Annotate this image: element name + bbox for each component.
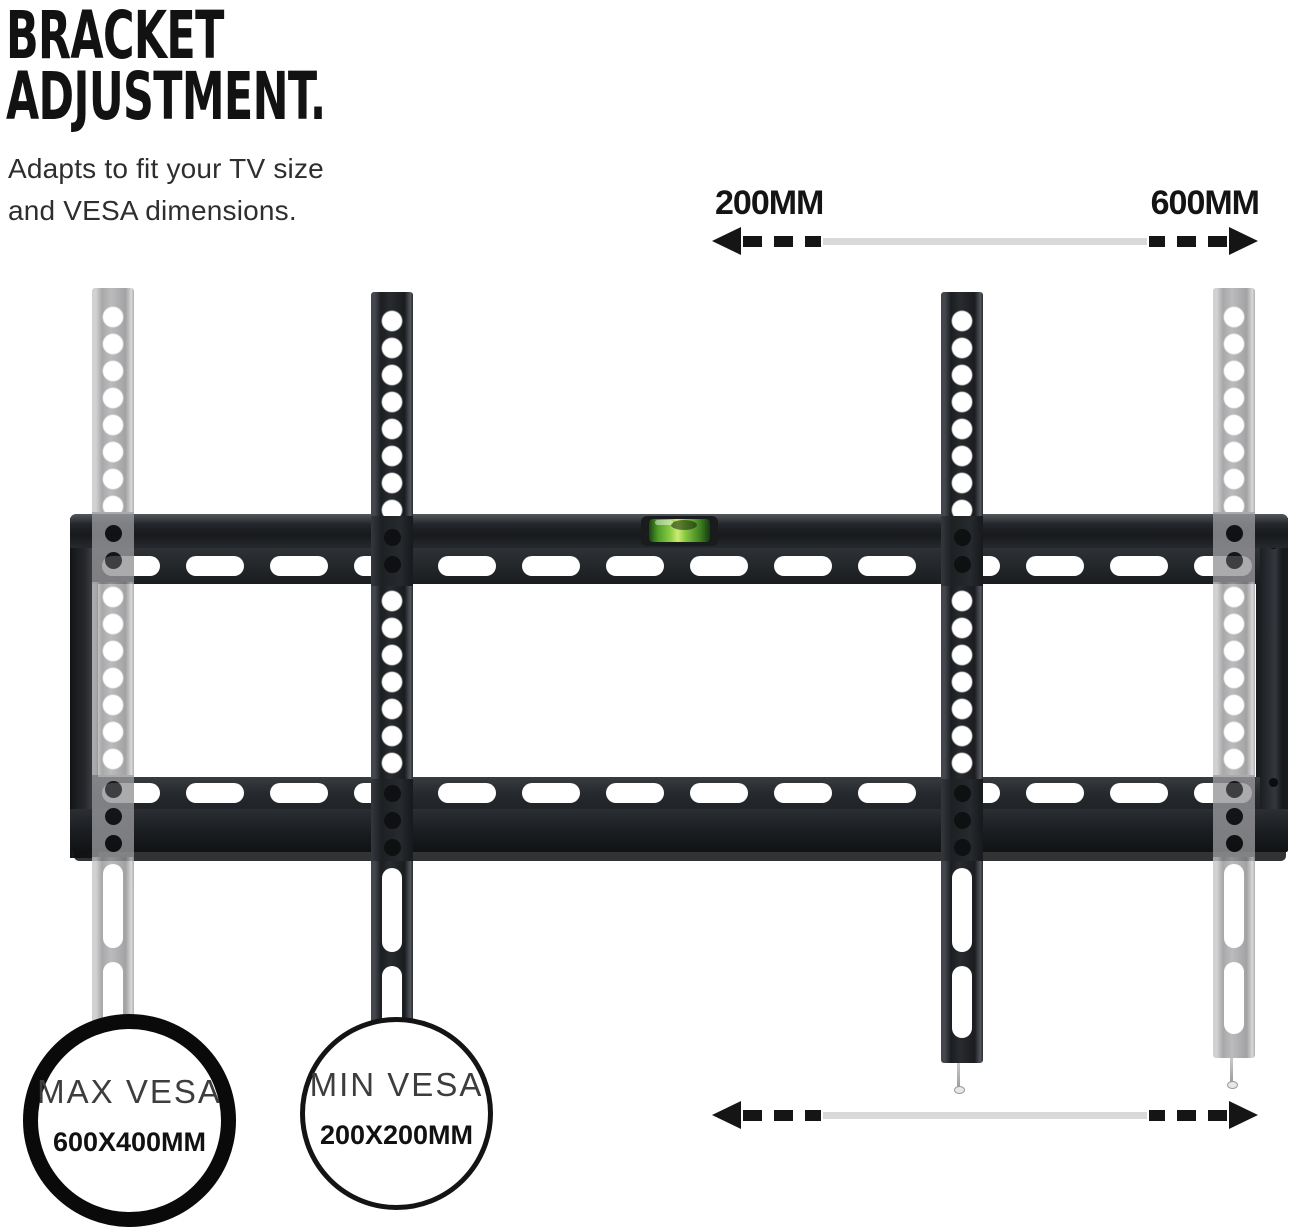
arrow-track-line (823, 238, 1147, 245)
max-vesa-badge: MAX VESA 600X400MM (23, 1014, 236, 1227)
bracket-hole (954, 839, 971, 856)
bracket-hole (954, 529, 971, 546)
bracket-hole-column (941, 308, 983, 524)
min-vesa-badge: MIN VESA 200X200MM (300, 1017, 493, 1210)
rail-slot (522, 783, 580, 803)
rail-slot (690, 783, 748, 803)
spirit-level-glass (649, 519, 710, 542)
bracket-slot (103, 864, 123, 948)
bracket-hole (105, 525, 122, 542)
arrowhead-left-icon (712, 227, 741, 255)
page-subtitle-line1: Adapts to fit your TV size (8, 148, 324, 190)
arrowhead-right-icon (1229, 227, 1258, 255)
bracket-rail-crossing (371, 516, 413, 586)
rail-slot (858, 783, 916, 803)
wall-plate-bottom-rail-slots (92, 777, 1260, 809)
page-subtitle-line2: and VESA dimensions. (8, 190, 324, 232)
rail-slot (690, 556, 748, 576)
bracket-rail-crossing (371, 779, 413, 861)
vesa-bracket-inner-right (941, 292, 983, 1063)
bottom-dimension-arrow (712, 1100, 1258, 1130)
rail-slot (606, 556, 664, 576)
bracket-hole (1226, 835, 1243, 852)
rail-slot (186, 783, 244, 803)
bracket-hole-column (371, 588, 413, 777)
bracket-hole (954, 556, 971, 573)
vesa-bracket-ghost-outer-left (92, 288, 134, 1040)
bracket-hole (105, 552, 122, 569)
rail-slot (1110, 556, 1168, 576)
page-title-line2: ADJUSTMENT. (6, 66, 326, 127)
rail-slot (1026, 556, 1084, 576)
rail-slot (438, 556, 496, 576)
wall-plate-right-end (1256, 518, 1288, 810)
rail-slot (186, 556, 244, 576)
bracket-hole-column (1213, 584, 1255, 773)
arrowhead-left-icon (712, 1101, 741, 1129)
bracket-hole (384, 839, 401, 856)
bracket-slot (952, 966, 972, 1038)
bracket-hole-column (371, 308, 413, 524)
wall-plate-bottom-rail (70, 809, 1288, 852)
arrow-dashes (743, 1110, 821, 1121)
arrow-dashes (743, 236, 821, 247)
bracket-slot (382, 868, 402, 952)
arrow-dashes (1149, 1110, 1227, 1121)
bracket-hole (384, 812, 401, 829)
bracket-rail-crossing (941, 779, 983, 861)
max-width-label: 600MM (1151, 184, 1259, 223)
wall-plate-top-rail-slots (92, 548, 1260, 584)
rail-slot (522, 556, 580, 576)
page-title-line1: BRACKET (6, 5, 326, 66)
screw-hole (1269, 778, 1278, 787)
arrowhead-right-icon (1229, 1101, 1258, 1129)
bracket-hole (384, 556, 401, 573)
min-vesa-value: 200X200MM (320, 1120, 473, 1151)
bracket-slot (1224, 864, 1244, 948)
bracket-rail-crossing (1213, 512, 1255, 582)
bracket-hole (1226, 808, 1243, 825)
bracket-rail-crossing (941, 516, 983, 586)
rail-slot (858, 556, 916, 576)
bracket-hole (1226, 525, 1243, 542)
top-dimension-arrow (712, 226, 1258, 256)
max-vesa-value: 600X400MM (53, 1127, 206, 1158)
rail-slot (1026, 783, 1084, 803)
bracket-hole-column (92, 584, 134, 773)
page-title: BRACKET ADJUSTMENT. (6, 5, 326, 127)
rail-slot (270, 556, 328, 576)
pull-cord (1230, 1058, 1233, 1084)
wall-plate-bottom-shadow (74, 852, 1286, 861)
bracket-hole-column (1213, 304, 1255, 520)
bracket-hole (1226, 781, 1243, 798)
bracket-hole (954, 812, 971, 829)
bracket-rail-crossing (1213, 775, 1255, 857)
bracket-slot (952, 868, 972, 952)
rail-slot (606, 783, 664, 803)
rail-slot (774, 783, 832, 803)
bracket-hole (954, 785, 971, 802)
bracket-hole (384, 785, 401, 802)
max-vesa-label: MAX VESA (37, 1073, 222, 1111)
arrow-dashes (1149, 236, 1227, 247)
bracket-hole (105, 808, 122, 825)
spirit-level-icon (641, 516, 718, 546)
pull-cord (957, 1063, 960, 1089)
bracket-rail-crossing (92, 775, 134, 857)
bracket-hole-column (941, 588, 983, 777)
bracket-adjustment-diagram: BRACKET ADJUSTMENT. Adapts to fit your T… (0, 0, 1292, 1227)
bracket-slot (1224, 962, 1244, 1034)
vesa-bracket-ghost-outer-right (1213, 288, 1255, 1058)
bracket-hole (105, 835, 122, 852)
bracket-hole (105, 781, 122, 798)
vesa-bracket-inner-left (371, 292, 413, 1063)
min-vesa-label: MIN VESA (310, 1066, 484, 1104)
bracket-rail-crossing (92, 512, 134, 582)
rail-slot (270, 783, 328, 803)
bracket-hole-column (92, 304, 134, 520)
arrow-track-line (823, 1112, 1147, 1119)
page-subtitle: Adapts to fit your TV size and VESA dime… (8, 148, 324, 232)
bracket-hole (1226, 552, 1243, 569)
rail-slot (438, 783, 496, 803)
bracket-hole (384, 529, 401, 546)
min-width-label: 200MM (715, 184, 823, 223)
rail-slot (1110, 783, 1168, 803)
rail-slot (774, 556, 832, 576)
